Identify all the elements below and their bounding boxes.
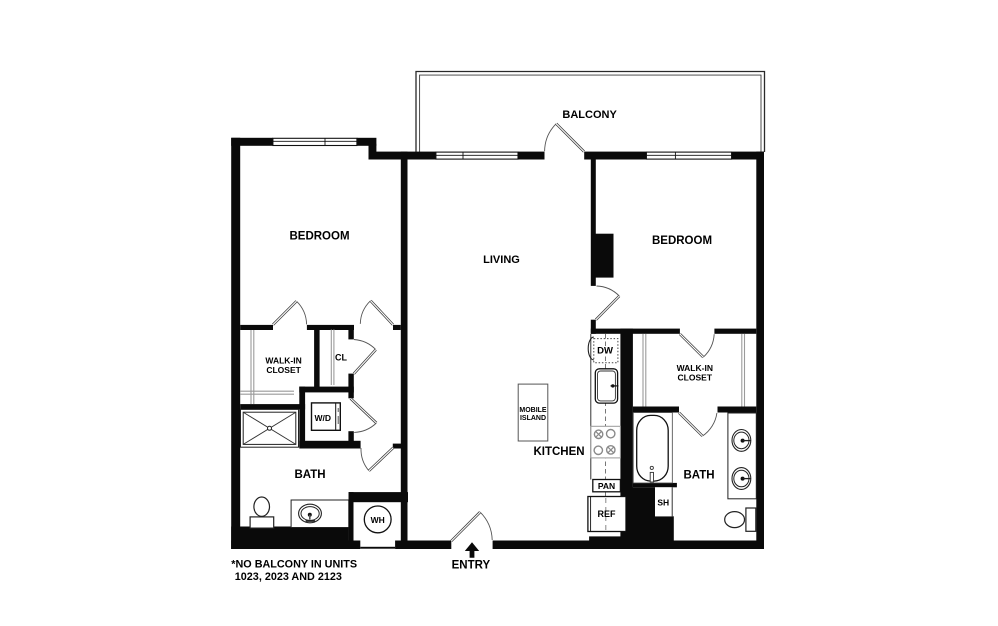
svg-text:SH: SH [657, 498, 669, 508]
svg-text:BEDROOM: BEDROOM [652, 235, 712, 247]
svg-text:*NO BALCONY IN UNITS: *NO BALCONY IN UNITS [231, 558, 357, 570]
svg-text:CLOSET: CLOSET [678, 373, 713, 383]
svg-text:WH: WH [371, 515, 385, 525]
svg-text:ENTRY: ENTRY [452, 560, 491, 572]
svg-text:PAN: PAN [598, 481, 615, 491]
svg-text:REF: REF [598, 509, 617, 519]
svg-text:BALCONY: BALCONY [562, 109, 617, 121]
svg-text:BEDROOM: BEDROOM [289, 231, 349, 243]
svg-text:CLOSET: CLOSET [266, 365, 301, 375]
svg-text:LIVING: LIVING [483, 254, 520, 266]
svg-text:W/D: W/D [315, 413, 332, 423]
svg-text:ISLAND: ISLAND [520, 415, 546, 422]
svg-text:BATH: BATH [294, 469, 325, 481]
svg-text:DW: DW [597, 346, 613, 357]
svg-text:BATH: BATH [683, 470, 714, 482]
svg-text:CL: CL [335, 353, 347, 363]
svg-text:KITCHEN: KITCHEN [533, 446, 584, 458]
svg-text:1023, 2023 AND 2123: 1023, 2023 AND 2123 [235, 571, 342, 583]
svg-text:MOBILE: MOBILE [519, 407, 547, 414]
